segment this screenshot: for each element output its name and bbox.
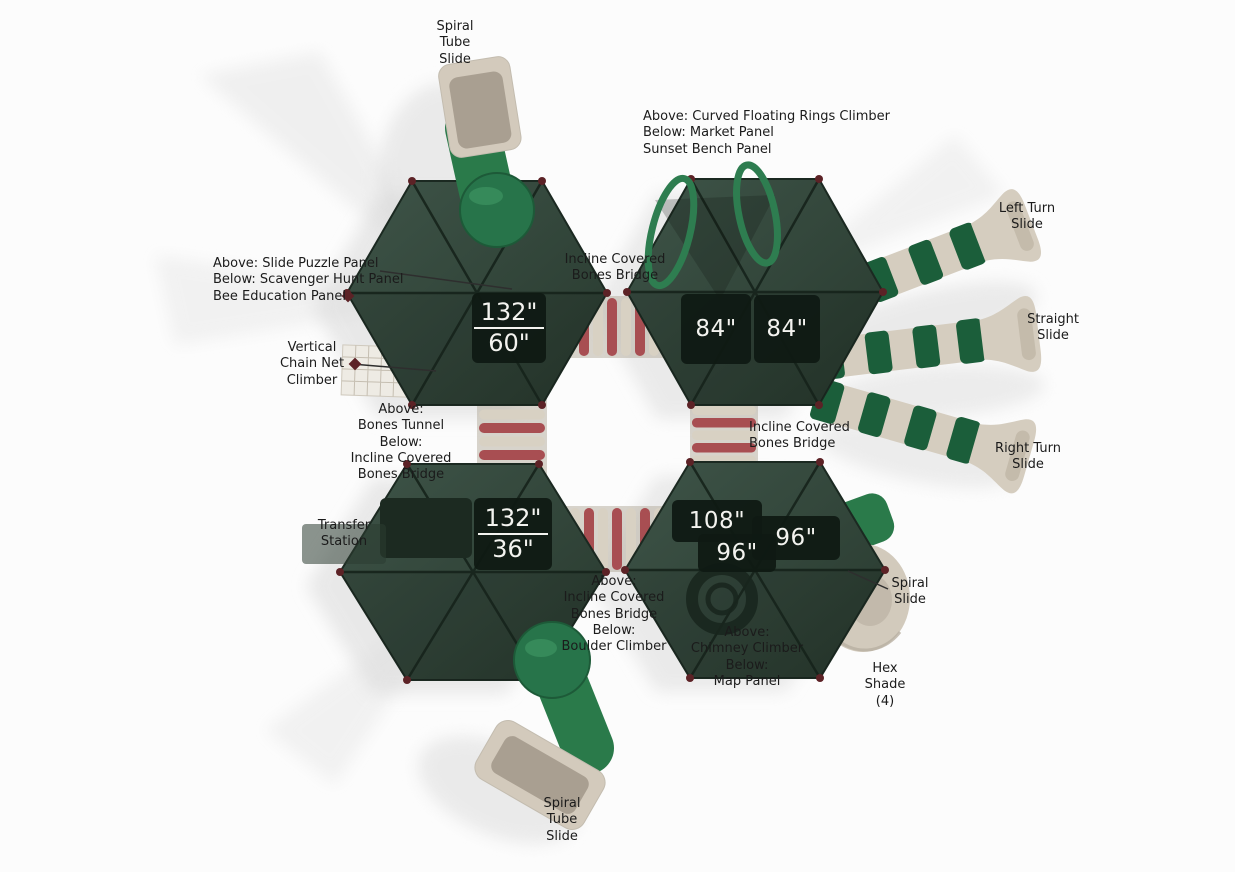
- label-right-turn-slide: Right Turn Slide: [995, 441, 1061, 474]
- label-spiral-slide: Spiral Slide: [891, 576, 928, 609]
- label-slide-puzzle-panel: Above: Slide Puzzle Panel Below: Scaveng…: [213, 256, 404, 305]
- label-bones-tunnel: Above: Bones Tunnel Below: Incline Cover…: [351, 402, 452, 483]
- measurement-height: 60": [488, 329, 530, 357]
- measurement-width: 132": [478, 505, 549, 535]
- label-spiral-tube-slide-bottom: Spiral Tube Slide: [543, 796, 580, 845]
- label-hex-shade: Hex Shade (4): [865, 661, 906, 710]
- measurement-width: 132": [474, 299, 545, 329]
- label-spiral-tube-slide-top: Spiral Tube Slide: [436, 19, 473, 68]
- platform-measurement-132-60: 132" 60": [472, 293, 546, 363]
- label-incline-covered-bones-bridge-right: Incline Covered Bones Bridge: [749, 420, 850, 453]
- label-left-turn-slide: Left Turn Slide: [999, 201, 1055, 234]
- playground-diagram: Spiral Tube Slide Above: Curved Floating…: [0, 0, 1235, 872]
- platform-measurement-84-right: 84": [754, 295, 820, 363]
- measurement-height: 36": [492, 535, 534, 563]
- label-transfer-station: Transfer Station: [318, 518, 370, 551]
- platform-measurement-132-36: 132" 36": [474, 498, 552, 570]
- platform-measurement-96-lower: 96": [698, 534, 776, 572]
- playground-top-view-illustration: [0, 0, 1235, 872]
- platform-measurement-84-left: 84": [681, 294, 751, 364]
- label-chimney-climber-map-panel: Above: Chimney Climber Below: Map Panel: [691, 625, 803, 690]
- label-incline-bridge-boulder-climber: Above: Incline Covered Bones Bridge Belo…: [561, 574, 666, 655]
- label-curved-floating-rings-climber: Above: Curved Floating Rings Climber Bel…: [643, 109, 890, 158]
- label-vertical-chain-net-climber: Vertical Chain Net Climber: [280, 340, 344, 389]
- label-straight-slide: Straight Slide: [1027, 312, 1079, 345]
- label-incline-covered-bones-bridge-top: Incline Covered Bones Bridge: [565, 252, 666, 285]
